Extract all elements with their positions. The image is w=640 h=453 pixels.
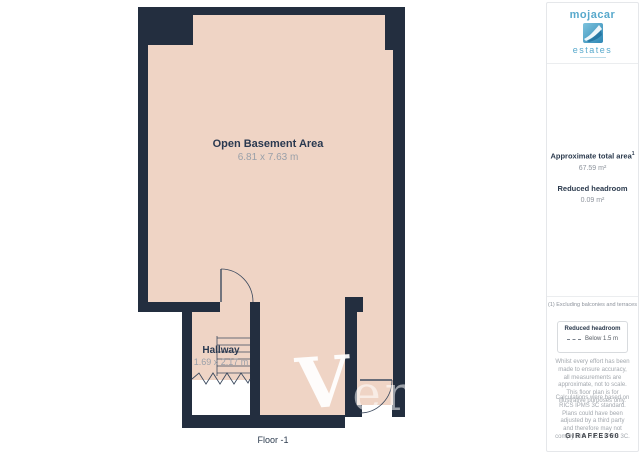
- agency-logo: mojacar estates: [547, 9, 638, 58]
- wall-bottomright-stub-left: [345, 405, 362, 417]
- stat-label-total-area: Approximate total area1: [547, 151, 638, 161]
- sidebar-divider: [547, 63, 638, 64]
- stat-label-text: Approximate total area: [550, 152, 631, 161]
- area-stats: Approximate total area1 67.59 m² Reduced…: [547, 151, 638, 216]
- dashed-line-icon: [567, 339, 581, 340]
- wall-right: [393, 7, 405, 417]
- wall-right-pilaster: [385, 15, 393, 50]
- room-label-hallway: Hallway 1.69 x 2.17 m: [186, 345, 256, 367]
- stair-void: [192, 380, 250, 415]
- agency-logo-icon: [583, 23, 603, 43]
- agency-sub-brand: estates: [547, 45, 638, 55]
- stat-value-reduced-headroom: 0.09 m²: [547, 197, 638, 204]
- stat-superscript: 1: [632, 151, 635, 157]
- logo-tagline-rule: [580, 57, 606, 58]
- room-dimensions: 1.69 x 2.17 m: [186, 357, 256, 367]
- room-name: Hallway: [186, 345, 256, 356]
- stat-value-total-area: 67.59 m²: [547, 165, 638, 172]
- legend-row: Below 1.5 m: [558, 336, 627, 342]
- giraffe360-logo: GIRAFFE360: [547, 433, 638, 440]
- door-opening-gap: [362, 405, 392, 417]
- area-footnote: (1) Excluding balconies and terraces: [547, 302, 638, 308]
- wall-left: [138, 7, 148, 312]
- wall-hallway-left: [182, 312, 192, 428]
- legend-item-label: Below 1.5 m: [585, 336, 618, 342]
- wall-interior: [345, 297, 357, 410]
- wall-bottomleft-band: [138, 302, 220, 312]
- stat-label-reduced-headroom: Reduced headroom: [547, 184, 638, 193]
- floorplan-page: Open Basement Area 6.81 x 7.63 m Hallway…: [0, 0, 640, 453]
- sidebar-divider: [547, 296, 638, 297]
- room-dimensions: 6.81 x 7.63 m: [178, 152, 358, 163]
- room-name: Open Basement Area: [178, 138, 358, 150]
- floorplan-canvas: Open Basement Area 6.81 x 7.63 m Hallway…: [0, 0, 545, 453]
- room-label-open-basement: Open Basement Area 6.81 x 7.63 m: [178, 138, 358, 163]
- legend-title: Reduced headroom: [558, 326, 627, 332]
- wall-bottom-left: [182, 415, 345, 428]
- legend-box: Reduced headroom Below 1.5 m: [557, 321, 628, 353]
- info-sidebar: mojacar estates Approximate total area1 …: [546, 2, 639, 452]
- floor-basement-extension: [260, 297, 393, 415]
- agency-brand-name: mojacar: [547, 9, 638, 21]
- floor-caption: Floor -1: [193, 435, 353, 445]
